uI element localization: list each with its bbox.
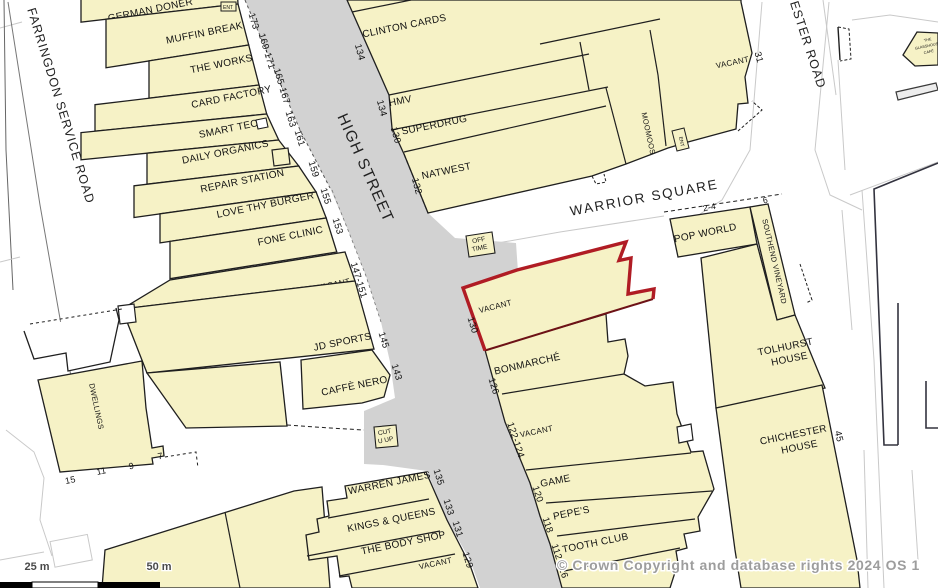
svg-text:50 m: 50 m: [146, 561, 171, 573]
svg-text:ENT: ENT: [223, 5, 233, 11]
svg-text:11: 11: [95, 465, 107, 477]
svg-text:© Crown Copyright and database: © Crown Copyright and database rights 20…: [557, 557, 920, 573]
svg-text:25 m: 25 m: [24, 561, 49, 573]
